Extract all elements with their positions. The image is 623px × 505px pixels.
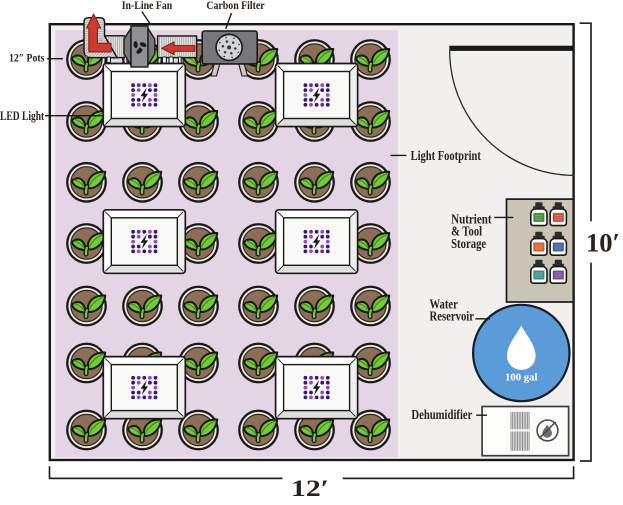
svg-text:10′: 10′ bbox=[586, 229, 620, 258]
svg-text:Reservoir: Reservoir bbox=[430, 309, 475, 324]
svg-text:Storage: Storage bbox=[451, 236, 486, 251]
svg-text:Light Footprint: Light Footprint bbox=[411, 148, 482, 163]
svg-text:In-Line Fan: In-Line Fan bbox=[122, 0, 173, 12]
svg-text:Dehumidifier: Dehumidifier bbox=[411, 407, 472, 422]
svg-text:LED Light: LED Light bbox=[0, 109, 45, 123]
svg-text:100 gal: 100 gal bbox=[505, 372, 538, 384]
svg-text:Carbon Filter: Carbon Filter bbox=[206, 0, 265, 12]
svg-text:12′: 12′ bbox=[291, 476, 329, 500]
svg-text:12″ Pots: 12″ Pots bbox=[9, 52, 45, 64]
